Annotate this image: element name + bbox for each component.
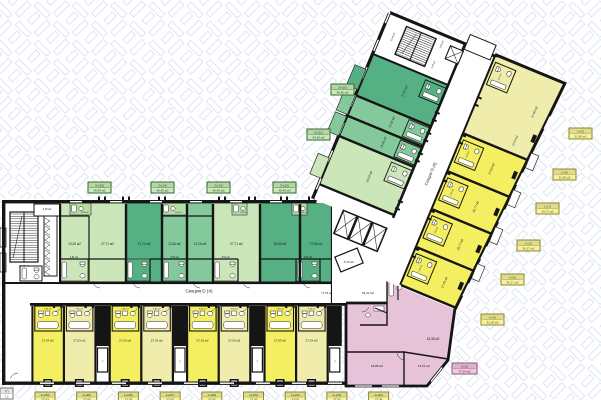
svg-text:27,03 м2: 27,03 м2 <box>197 339 209 343</box>
svg-text:13,26 м2: 13,26 м2 <box>68 242 81 246</box>
svg-text:1+(22): 1+(22) <box>374 393 383 397</box>
svg-text:18,88 м2: 18,88 м2 <box>371 364 383 368</box>
svg-text:27,83 м2: 27,83 м2 <box>310 242 323 246</box>
svg-text:27,03 м2: 27,03 м2 <box>274 339 286 343</box>
svg-text:1+(26): 1+(26) <box>207 393 216 397</box>
svg-text:2+(15): 2+(15) <box>95 184 104 188</box>
svg-text:27,03 м2: 27,03 м2 <box>119 339 131 343</box>
svg-text:27,03 м2: 27,03 м2 <box>151 339 163 343</box>
svg-text:3+(3): 3+(3) <box>461 365 468 369</box>
svg-text:4,95 м2: 4,95 м2 <box>76 309 84 311</box>
svg-text:2+(12): 2+(12) <box>280 184 289 188</box>
svg-text:4,95 м2: 4,95 м2 <box>44 309 52 311</box>
svg-text:1+(7): 1+(7) <box>544 205 551 209</box>
svg-text:1+(9): 1+(9) <box>577 130 584 134</box>
svg-text:Секция D (4): Секция D (4) <box>185 289 213 294</box>
svg-text:4,95 м2: 4,95 м2 <box>276 309 284 311</box>
svg-text:1+(28): 1+(28) <box>124 393 133 397</box>
svg-text:1+(5): 1+(5) <box>509 276 516 280</box>
svg-text:27,03 м2: 27,03 м2 <box>42 339 54 343</box>
svg-text:1+(29): 1+(29) <box>82 393 91 397</box>
svg-text:77,51 м2: 77,51 м2 <box>321 291 333 295</box>
svg-text:1+(8): 1+(8) <box>561 171 568 175</box>
svg-text:2+(13): 2+(13) <box>214 184 223 188</box>
svg-text:1+(23): 1+(23) <box>333 393 342 397</box>
svg-text:33,38 м2: 33,38 м2 <box>427 337 440 341</box>
svg-text:1+(6): 1+(6) <box>525 242 532 246</box>
svg-text:4,45 м2: 4,45 м2 <box>43 208 52 211</box>
svg-text:2+(14): 2+(14) <box>158 184 167 188</box>
svg-text:4,95 м2: 4,95 м2 <box>308 309 316 311</box>
svg-text:27,71 м2: 27,71 м2 <box>101 242 114 246</box>
svg-text:1+(30): 1+(30) <box>41 393 50 397</box>
svg-text:27,03 м2: 27,03 м2 <box>73 339 85 343</box>
svg-text:45,45 м2: 45,45 м2 <box>93 189 105 193</box>
svg-text:31,08 м2: 31,08 м2 <box>486 321 498 325</box>
svg-text:30,72 м2: 30,72 м2 <box>541 210 553 214</box>
svg-text:1,86 м2: 1,86 м2 <box>175 212 183 214</box>
svg-text:1+(4): 1+(4) <box>489 316 496 320</box>
svg-text:4,95 м2: 4,95 м2 <box>153 309 161 311</box>
svg-text:27,71 м2: 27,71 м2 <box>230 242 243 246</box>
svg-text:1,86 м2: 1,86 м2 <box>240 212 248 214</box>
svg-text:31,08 м2: 31,08 м2 <box>574 135 586 139</box>
svg-text:36,17 м2: 36,17 м2 <box>506 281 518 285</box>
svg-text:15,64 м2: 15,64 м2 <box>418 364 430 368</box>
svg-text:1,86 м2: 1,86 м2 <box>81 212 89 214</box>
svg-text:31,08 м2: 31,08 м2 <box>558 176 570 180</box>
svg-text:45,45 м2: 45,45 м2 <box>278 189 290 193</box>
svg-text:44,30 м2: 44,30 м2 <box>312 136 324 140</box>
svg-text:45,45 м2: 45,45 м2 <box>212 189 224 193</box>
svg-text:63,41 м2: 63,41 м2 <box>362 291 374 295</box>
svg-text:36,17 м2: 36,17 м2 <box>522 247 534 251</box>
svg-text:27,03 м2: 27,03 м2 <box>306 339 318 343</box>
svg-text:8,75 м2: 8,75 м2 <box>344 260 354 264</box>
svg-text:2+(10): 2+(10) <box>338 86 347 90</box>
svg-text:45,45 м2: 45,45 м2 <box>156 189 168 193</box>
svg-text:77,04 м2: 77,04 м2 <box>458 370 470 374</box>
svg-text:45,45 м2: 45,45 м2 <box>336 91 348 95</box>
svg-text:4,95 м2: 4,95 м2 <box>230 309 238 311</box>
svg-text:1+(27): 1+(27) <box>166 393 175 397</box>
svg-text:27,71 м2: 27,71 м2 <box>138 242 151 246</box>
svg-text:1+(25): 1+(25) <box>249 393 258 397</box>
svg-text:7,2: 7,2 <box>4 395 9 399</box>
svg-text:27,03 м2: 27,03 м2 <box>228 339 240 343</box>
svg-text:13,26 м2: 13,26 м2 <box>194 242 207 246</box>
svg-text:ТП: ТП <box>5 390 9 394</box>
svg-text:4,95 м2: 4,95 м2 <box>199 309 207 311</box>
svg-text:13,26 м2: 13,26 м2 <box>168 242 181 246</box>
svg-text:36,83 м2: 36,83 м2 <box>274 242 287 246</box>
svg-text:1+(24): 1+(24) <box>291 393 300 397</box>
svg-text:4,95 м2: 4,95 м2 <box>121 309 129 311</box>
svg-text:2+(11): 2+(11) <box>314 131 323 135</box>
